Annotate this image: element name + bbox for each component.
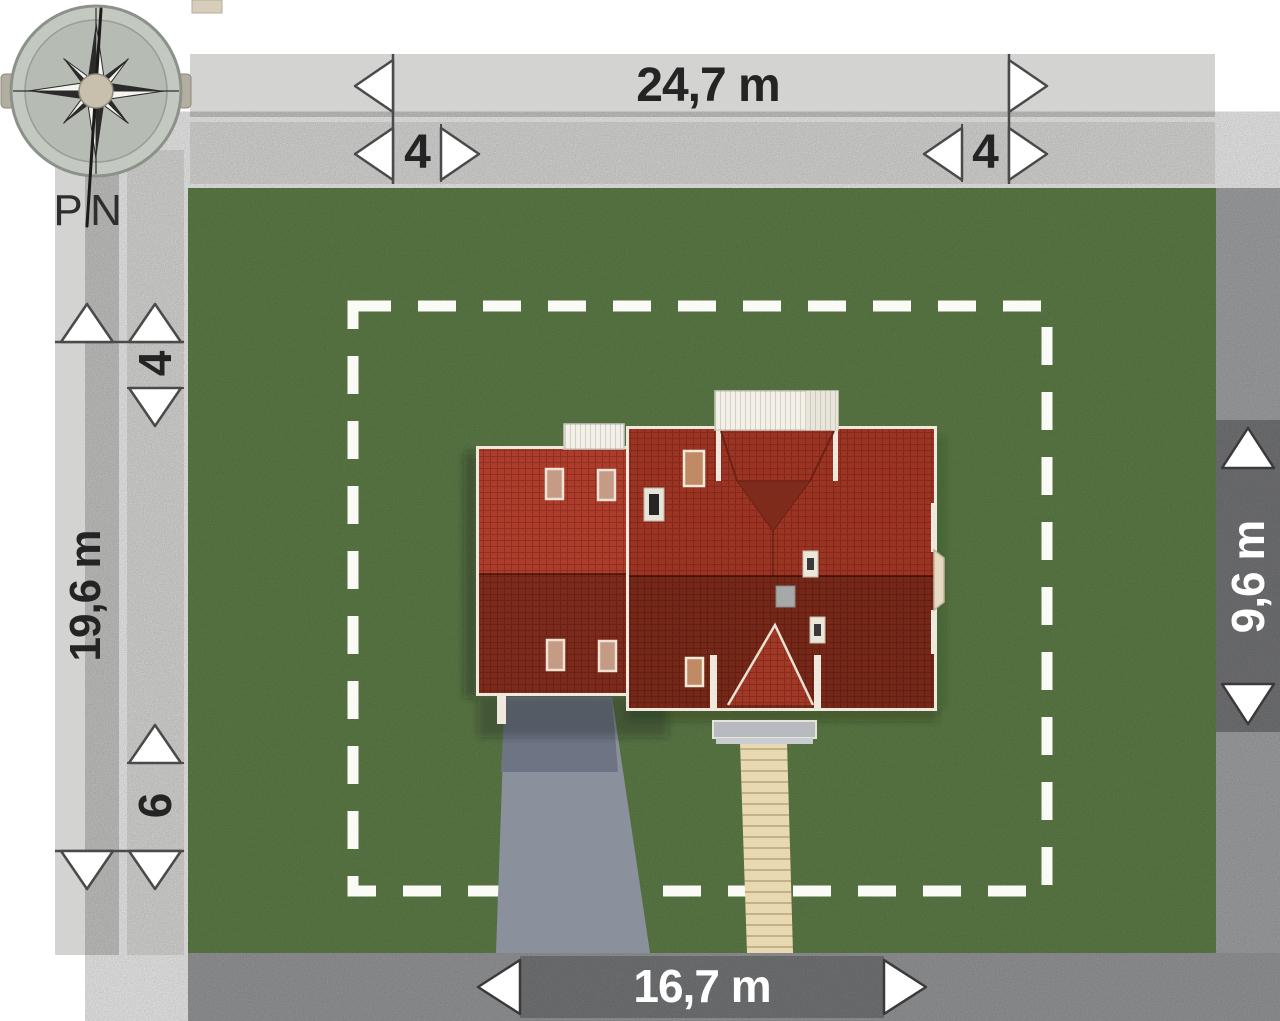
walkway bbox=[740, 742, 793, 953]
compass-mount-tab bbox=[192, 0, 222, 13]
house-width-label: 16,7 m bbox=[633, 963, 770, 1009]
compass-hub bbox=[79, 74, 113, 108]
site-plan-graphic bbox=[0, 0, 1280, 1021]
compass-north-label: N bbox=[90, 189, 122, 233]
top-setback-right-label: 4 bbox=[972, 129, 998, 177]
left-setback-bottom-label: 6 bbox=[132, 794, 178, 819]
canopy-large bbox=[715, 391, 838, 430]
house-left-wing bbox=[476, 424, 629, 724]
house-main-block bbox=[626, 391, 944, 744]
plot-width-label: 24,7 m bbox=[636, 62, 779, 110]
plot-depth-label: 19,6 m bbox=[64, 531, 108, 662]
compass-west-label: P bbox=[53, 189, 82, 233]
roof-vent bbox=[776, 586, 795, 607]
top-setback-left-label: 4 bbox=[404, 129, 430, 177]
house-depth-label: 9,6 m bbox=[1225, 521, 1271, 634]
site-plan: 24,7 m 4 4 19,6 m 4 6 9,6 m 16,7 m P N bbox=[0, 0, 1280, 1021]
porch-platform bbox=[713, 721, 816, 738]
left-setback-top-label: 4 bbox=[132, 352, 178, 377]
canopy-small bbox=[564, 424, 624, 449]
